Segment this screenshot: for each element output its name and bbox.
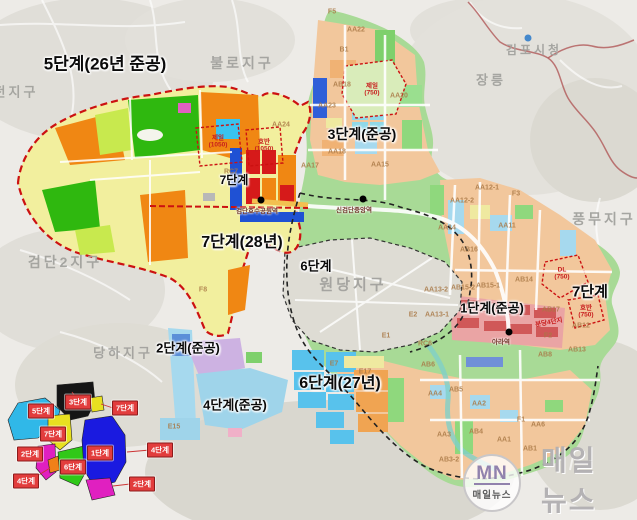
block-code-label: AB3-2 [439,457,459,464]
phase-6-mid: 6단계 [300,260,331,273]
block-code-label: E1 [382,333,391,340]
district-label: 불로지구 [210,56,274,70]
station-label: 신검단중앙역 [336,208,372,215]
inset-phase-label: 5단계 [28,404,54,419]
block-code-label: F3 [512,191,520,198]
inset-phase-label: 6단계 [60,460,86,475]
inset-phase-label: 4단계 [147,443,173,458]
block-code-label: AA22 [347,27,365,34]
district-label: 김포시청 [506,44,562,56]
phase-6-south: 6단계(27년) [299,376,381,392]
block-code-label: F1 [517,417,525,424]
block-code-label: RC6 [418,341,432,348]
block-code-label: AA20 [390,93,408,100]
block-code-label: AB13 [568,347,586,354]
logo-name: 매일뉴스 [465,487,519,501]
block-code-label: AB18 [333,82,351,89]
logo-initials: MN [474,464,510,485]
block-code-label: AB17 [542,307,560,314]
block-code-label: AA6 [531,422,545,429]
station-label: 검단호수공원역 [236,209,278,216]
block-code-label: AB6 [421,362,435,369]
district-label: 당하지구 [93,347,153,360]
station-marker [506,329,513,336]
maeil-news-logo: MN 매일뉴스 [463,454,521,512]
news-map-image: 5단계(26년 준공)3단계(준공)7단계7단계(28년)6단계1단계(준공)7… [0,0,637,520]
block-code-label: E17 [359,369,371,376]
parcel-label: 제일(750) [364,83,379,98]
district-label: 전지구 [0,86,38,99]
block-code-label: AA13-2 [424,287,448,294]
block-code-label: RC7 [224,169,238,176]
district-label: 풍무지구 [572,212,636,226]
block-code-label: F5 [328,9,336,16]
phase-3: 3단계(준공) [328,127,397,141]
block-code-label: AB14 [515,277,533,284]
block-code-label: AA11 [498,223,516,230]
inset-phase-label: 4단계 [13,474,39,489]
district-label: 검단2지구 [28,255,102,269]
inset-phase-label: 3단계 [65,395,91,410]
block-code-label: AB4 [469,429,483,436]
block-code-label: E7 [330,361,339,368]
parcel-label: 제일(1050) [209,135,228,150]
block-code-label: AA23 [318,103,336,110]
block-code-label: AA24 [272,122,290,129]
phase-7-west: 7단계(28년) [201,235,283,251]
district-label: 장릉 [476,74,506,87]
block-code-label: AB12 [572,323,590,330]
station-label: 아라역 [492,340,510,347]
inset-phase-label: 2단계 [17,447,43,462]
block-code-label: F8 [199,287,207,294]
inset-phase-label: 7단계 [112,401,138,416]
phase-4: 4단계(준공) [203,399,267,412]
parcel-label: 호반(750) [578,305,593,320]
block-code-label: AB16 [460,247,478,254]
block-code-label: AA3 [437,432,451,439]
block-code-label: AA13-1 [425,312,449,319]
station-marker [258,197,265,204]
phase-7-top: 7단계 [220,174,249,186]
block-code-label: E15 [168,424,180,431]
block-code-label: AA1 [497,437,511,444]
block-code-label: AA2 [472,401,486,408]
phase-5: 5단계(26년 준공) [44,56,167,73]
inset-phase-label: 1단계 [87,446,113,461]
block-code-label: B1 [340,47,349,54]
block-code-label: AB5 [449,387,463,394]
block-code-label: AB8 [538,352,552,359]
watermark-text: 매일뉴스 [541,439,605,519]
block-code-label: AA18 [328,149,346,156]
parcel-label: 분당4단지 [535,317,563,329]
block-code-label: AA17 [301,163,319,170]
block-code-label: F2 [544,333,552,340]
phase-7-east: 7단계 [572,285,608,300]
block-code-label: AA12-1 [475,185,499,192]
block-code-label: AB15-1 [476,283,500,290]
block-code-label: AB1 [523,446,537,453]
inset-phase-label: 2단계 [129,477,155,492]
block-code-label: AA15 [371,162,389,169]
inset-phase-label: 7단계 [40,427,66,442]
block-code-label: AA14 [438,225,456,232]
station-marker [360,196,367,203]
district-label: 원당지구 [319,278,386,293]
parcel-label: 호반(1050) [255,139,274,154]
phase-2: 2단계(준공) [156,342,220,355]
block-code-label: AA4 [428,391,442,398]
block-code-label: E2 [409,312,418,319]
block-code-label: AA12-2 [450,198,474,205]
parcel-label: DL(750) [554,267,569,282]
phase-1: 1단계(준공) [460,302,524,315]
block-code-label: AB15-2 [451,285,475,292]
